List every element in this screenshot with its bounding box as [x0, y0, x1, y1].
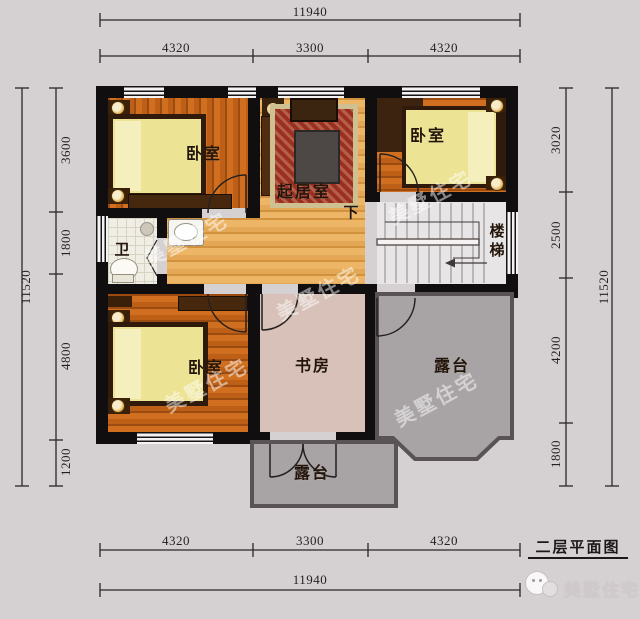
room-label-bedroom: 卧室: [186, 140, 222, 164]
room-label-study: 书房: [295, 352, 331, 376]
stair-landing-rail: [377, 239, 479, 245]
room-label-bathroom: 卫: [114, 239, 131, 260]
wechat-icon-eye: [539, 579, 542, 582]
brand-name: 美墅住宅: [564, 576, 640, 601]
dim-top-total: 11940: [270, 5, 350, 19]
dim-bottom-seg: 4320: [404, 534, 484, 548]
dim-left-seg: 4800: [59, 326, 73, 386]
room-label-terrace: 露台: [294, 459, 330, 483]
dim-top-seg: 3300: [270, 41, 350, 55]
wechat-icon-bubble: [543, 582, 557, 596]
dim-left-seg: 1800: [59, 213, 73, 273]
plan-linework: [0, 0, 640, 619]
dim-bottom-seg: 3300: [270, 534, 350, 548]
wechat-icon-eye: [532, 579, 535, 582]
dim-bottom-seg: 4320: [136, 534, 216, 548]
dim-left-total: 11520: [19, 262, 33, 312]
dim-right-seg: 1800: [549, 424, 563, 484]
dim-right-total: 11520: [597, 257, 611, 317]
room-label-stairs: 楼梯: [486, 223, 507, 261]
dim-top-seg: 4320: [404, 41, 484, 55]
dim-top-seg: 4320: [136, 41, 216, 55]
dim-left-seg: 1200: [59, 432, 73, 492]
room-label-living-room: 起居室: [277, 178, 331, 202]
dim-right-seg: 2500: [549, 205, 563, 265]
dim-bottom-total: 11940: [270, 573, 350, 587]
title-underline: [528, 557, 628, 559]
floor-plan-page: 11940 4320 3300 4320 4320 3300 4320 1194…: [0, 0, 640, 619]
dim-left-seg: 3600: [59, 120, 73, 180]
dim-right-seg: 4200: [549, 320, 563, 380]
room-label-bedroom: 卧室: [410, 122, 446, 146]
dim-right-seg: 3020: [549, 110, 563, 170]
stairs-down-label: 下: [343, 202, 360, 223]
plan-title: 二层平面图: [528, 536, 628, 557]
